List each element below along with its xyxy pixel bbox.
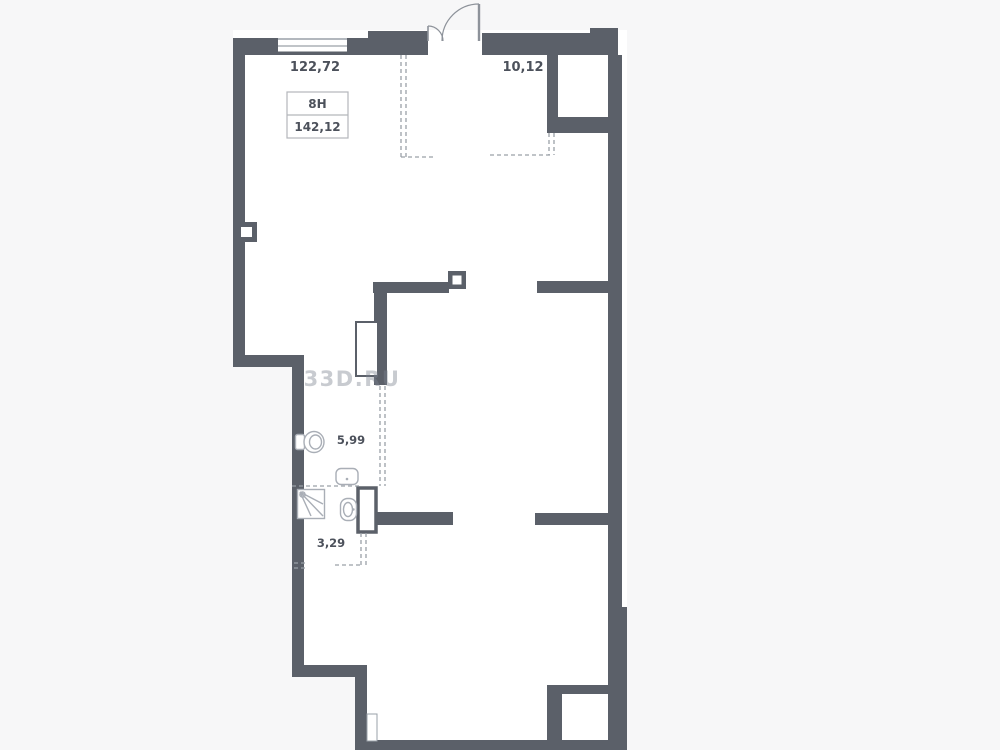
floor-plan-canvas: 122,72 10,12 8Н 142,12 5,99 3,29 33D.RU xyxy=(0,0,1000,750)
watermark: 33D.RU xyxy=(304,367,401,391)
room-area-entry: 10,12 xyxy=(502,60,543,75)
sink-icon xyxy=(336,469,358,485)
unit-label: 8Н xyxy=(308,97,326,111)
floor-plan: 122,72 10,12 8Н 142,12 5,99 3,29 33D.RU xyxy=(0,0,1000,750)
shaft-bottom-right xyxy=(562,694,608,740)
vent-shaft-bathroom xyxy=(358,488,376,532)
room-area-bathroom-small: 3,29 xyxy=(317,536,345,550)
unit-label-box: 8Н 142,12 xyxy=(287,92,348,138)
pilaster xyxy=(236,222,257,242)
total-area: 142,12 xyxy=(294,120,340,134)
toilet-icon xyxy=(296,432,325,453)
washbasin-icon xyxy=(341,499,357,521)
bottom-wall-opening xyxy=(367,714,377,741)
room-area-main: 122,72 xyxy=(290,60,340,75)
shower-icon xyxy=(298,490,325,519)
window-icon xyxy=(278,38,347,55)
room-area-bathroom-large: 5,99 xyxy=(337,433,365,447)
wall-end-column xyxy=(448,271,466,289)
